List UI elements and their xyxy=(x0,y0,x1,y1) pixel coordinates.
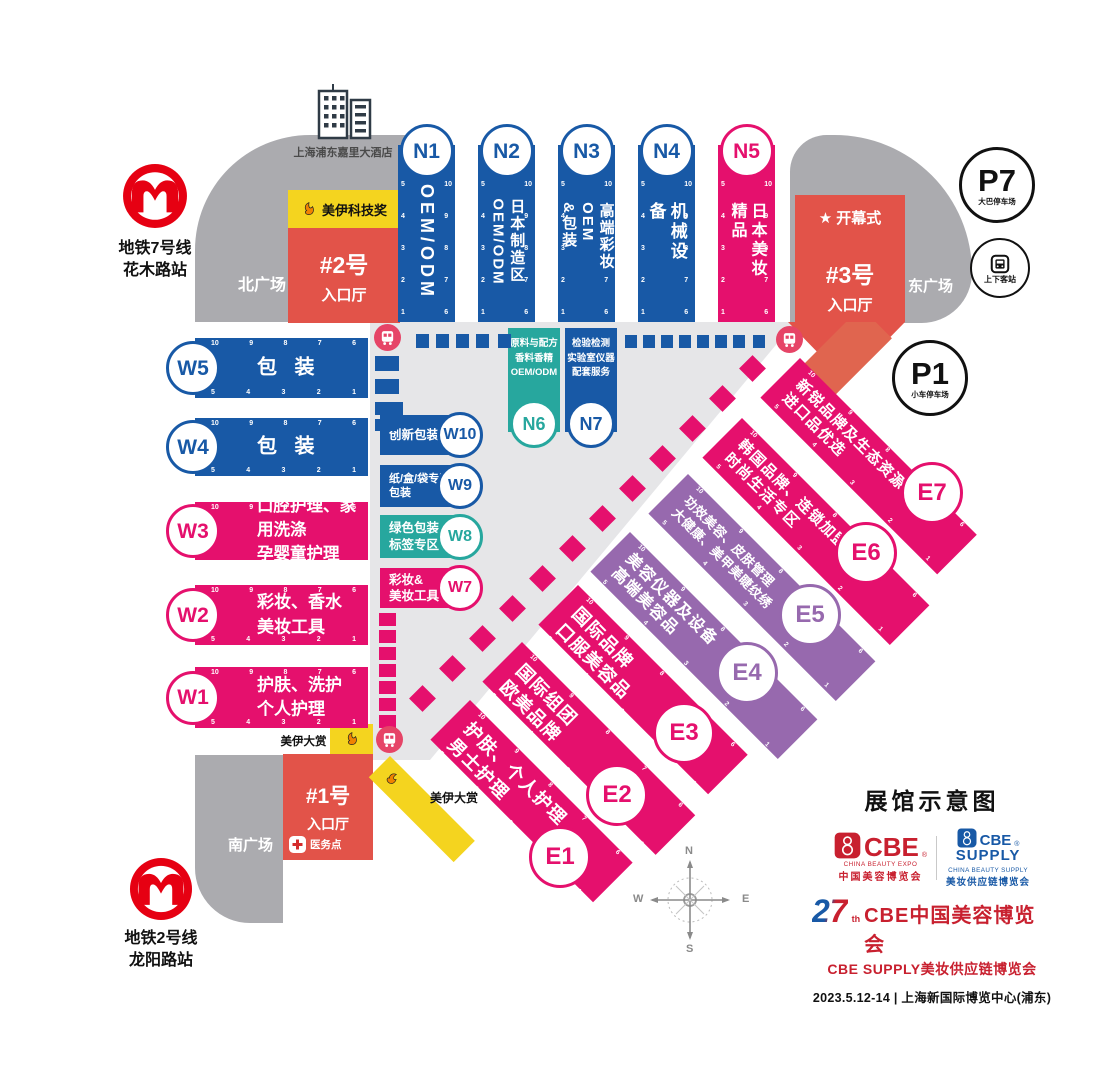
cbe-logo: CBE ® CHINA BEAUTY EXPO 中国美容博览会 xyxy=(834,832,927,883)
gate-tile xyxy=(375,356,399,371)
gate-tile xyxy=(753,335,765,348)
expo-date-venue: 2023.5.12-14 | 上海新国际博览中心(浦东) xyxy=(813,987,1051,1006)
zone-W7-label: 彩妆& 美妆工具 xyxy=(389,572,439,605)
hall-N5: 54321 109876 日本美妆精品 N5 xyxy=(718,145,775,322)
parking-p1-badge: P1 小车停车场 xyxy=(892,340,968,416)
venue-map: 上海浦东嘉里大酒店 地铁7号线 花木路站 地铁2号线 龙阳路站 北广场 东广场 … xyxy=(0,0,1093,1080)
meiyi-logo-icon xyxy=(344,731,360,747)
gate-tile xyxy=(379,681,396,694)
compass-w: W xyxy=(633,893,643,905)
zone-W10-badge: W10 xyxy=(437,412,483,458)
zone-W8-label: 绿色包装 标签专区 xyxy=(389,520,439,553)
hall-E4-badge: E4 xyxy=(716,642,778,704)
opening-ceremony-label: 开幕式 xyxy=(836,207,881,228)
parking-p7-label: 大巴停车场 xyxy=(978,198,1016,206)
expo-name-line2: CBE SUPPLY美妆供应链博览会 xyxy=(827,959,1036,979)
east-plaza-label: 东广场 xyxy=(908,275,953,296)
parking-p1-id: P1 xyxy=(911,358,949,389)
gate-tile xyxy=(375,419,397,431)
zone-W8-badge: W8 xyxy=(437,514,483,560)
cbe-supply-sub-cn: 美妆供应链博览会 xyxy=(946,874,1030,888)
star-icon: ★ xyxy=(819,209,832,227)
hall-N1: 54321 109876 OEM/ODM N1 xyxy=(398,145,455,322)
hall-N7-badge: N7 xyxy=(567,400,615,448)
hall-W1-badge: W1 xyxy=(166,671,220,725)
cbe-supply-logo-text1: CBE xyxy=(980,833,1012,848)
north-plaza-label: 北广场 xyxy=(238,271,286,295)
gate-tile xyxy=(625,335,637,348)
gate-tile xyxy=(379,647,396,660)
medical-cross-icon xyxy=(289,836,306,853)
gate-tile xyxy=(498,334,511,348)
compass-icon xyxy=(650,860,730,940)
cbe-logo-sub-cn: 中国美容博览会 xyxy=(838,868,922,883)
hall-E6-badge: E6 xyxy=(835,522,897,584)
gate-tile xyxy=(661,335,673,348)
cbe-supply-logo: CBE ® SUPPLY CHINA BEAUTY SUPPLY 美妆供应链博览… xyxy=(946,828,1030,888)
hall-N4-label: 机械设备 xyxy=(645,203,688,283)
gate-tile xyxy=(379,698,396,711)
hall-W4-badge: W4 xyxy=(166,420,220,474)
meiyi-award-logo-box xyxy=(330,724,373,754)
meiyi-logo-icon xyxy=(382,768,403,789)
meiyi-award-strip: 美伊大赏 xyxy=(277,727,330,754)
gate-numbers: 54321 xyxy=(401,181,405,316)
hall-N1-badge: N1 xyxy=(400,124,454,178)
cbe-supply-sub-en: CHINA BEAUTY SUPPLY xyxy=(948,867,1028,874)
hotel-icon xyxy=(306,82,378,144)
gate-tile xyxy=(416,334,429,348)
hall-W1-label: 护肤、洗护 个人护理 xyxy=(257,673,342,722)
registered-mark: ® xyxy=(922,852,927,859)
gate-numbers: 54321 xyxy=(481,181,485,316)
hall-N3-label: 高端彩妆OEM &包装 xyxy=(558,203,614,283)
hall-N2-badge: N2 xyxy=(480,124,534,178)
gate-numbers: 109876 xyxy=(211,420,356,427)
metro-line2-station: 龙阳路站 xyxy=(111,950,211,972)
meiyi-award-ramp-label: 美伊大赏 xyxy=(424,790,484,807)
meiyi-logo-icon xyxy=(301,201,317,217)
parking-p7-badge: P7 大巴停车场 xyxy=(959,147,1035,223)
hall-W2-badge: W2 xyxy=(166,588,220,642)
edition-number: 27 xyxy=(812,897,848,926)
passenger-station-badge: 上下客站 xyxy=(970,238,1030,298)
hall-N1-label: OEM/ODM xyxy=(415,184,438,300)
meiyi-tech-award-banner: 美伊科技奖 xyxy=(288,190,400,228)
gate-tile xyxy=(379,630,396,643)
gate-numbers: 109876 xyxy=(524,181,532,316)
entrance-1: #1号 入口厅 医务点 xyxy=(283,754,373,860)
hall-E1-badge: E1 xyxy=(529,826,591,888)
meiyi-tech-award-label: 美伊科技奖 xyxy=(322,200,387,219)
hall-N7-label: 检验检测 实验室仪器 配套服务 xyxy=(565,337,617,381)
bus-stop-icon xyxy=(376,726,403,753)
entrance-1-id: #1号 xyxy=(306,780,350,810)
hall-N4: 54321 109876 机械设备 N4 xyxy=(638,145,695,322)
hall-W2: 109876 54321 彩妆、香水 美妆工具 W2 xyxy=(195,585,368,645)
hall-W3-label: 口腔护理、家用洗涤 孕婴童护理 xyxy=(257,495,368,567)
hall-W5-label: 包 装 xyxy=(257,354,321,383)
gate-tile xyxy=(379,664,396,677)
medical-label: 医务点 xyxy=(310,837,342,852)
south-plaza-label: 南广场 xyxy=(228,834,273,855)
cbe-logo-sub-en: CHINA BEAUTY EXPO xyxy=(844,861,918,868)
metro-line2-icon xyxy=(128,856,194,922)
gate-tile xyxy=(476,334,489,348)
hall-W4: 109876 54321 包 装 W4 xyxy=(195,418,368,476)
hall-E5-badge: E5 xyxy=(779,584,841,646)
gate-tile xyxy=(436,334,449,348)
metro-line2-line: 地铁2号线 xyxy=(111,928,211,950)
passenger-station-label: 上下客站 xyxy=(984,276,1016,284)
metro-line7-icon xyxy=(121,162,189,230)
parking-p1-label: 小车停车场 xyxy=(911,391,949,399)
meiyi-award-label: 美伊大赏 xyxy=(281,733,327,749)
expo-name-line1: CBE中国美容博览会 xyxy=(864,899,1052,957)
hall-N3: 54321 109876 高端彩妆OEM &包装 N3 xyxy=(558,145,615,322)
bus-stop-icon xyxy=(776,326,803,353)
gate-tile xyxy=(697,335,709,348)
entrance-3-id: #3号 xyxy=(826,256,875,290)
entrance-2-hall: 入口厅 xyxy=(321,284,366,305)
parking-p7-id: P7 xyxy=(978,165,1016,196)
gate-tile xyxy=(379,613,396,626)
hall-N5-badge: N5 xyxy=(720,124,774,178)
zone-W9-badge: W9 xyxy=(437,463,483,509)
edition-suffix: th xyxy=(852,914,861,924)
hall-W4-label: 包 装 xyxy=(257,433,321,462)
hall-W5-badge: W5 xyxy=(166,341,220,395)
gate-numbers: 109876 xyxy=(211,340,356,347)
hall-E3-badge: E3 xyxy=(653,702,715,764)
hall-E2-badge: E2 xyxy=(586,764,648,826)
gate-tile xyxy=(375,379,399,394)
gate-tile xyxy=(643,335,655,348)
hall-N6-label: 原料与配方 香料香精 OEM/ODM xyxy=(508,337,560,381)
hall-N5-label: 日本美妆精品 xyxy=(727,203,767,283)
entrance-3: ★ 开幕式 #3号 入口厅 xyxy=(795,195,905,322)
hall-N6-badge: N6 xyxy=(510,400,558,448)
compass-n: N xyxy=(685,845,693,857)
hall-N3-badge: N3 xyxy=(560,124,614,178)
gate-tile xyxy=(375,402,403,415)
entrance-2-id: #2号 xyxy=(320,246,369,280)
cbe-logo-icon xyxy=(834,832,861,859)
metro-line7-line: 地铁7号线 xyxy=(105,238,205,260)
gate-numbers: 109876 xyxy=(444,181,452,316)
footer-branding: 展馆示意图 CBE ® CHINA BEAUTY EXPO 中国美容博览会 xyxy=(812,782,1052,1006)
cbe-supply-logo-icon xyxy=(957,828,977,848)
compass-e: E xyxy=(742,893,749,905)
hall-E7-badge: E7 xyxy=(901,462,963,524)
hall-W3-badge: W3 xyxy=(166,504,220,558)
gate-tile xyxy=(456,334,469,348)
map-title: 展馆示意图 xyxy=(865,782,1000,816)
gate-tile xyxy=(679,335,691,348)
cbe-supply-logo-text2: SUPPLY xyxy=(956,848,1021,865)
gate-tile xyxy=(733,335,745,348)
gate-numbers: 54321 xyxy=(721,181,725,316)
hall-N2: 54321 109876 日本制造区 OEM/ODM N2 xyxy=(478,145,535,322)
cbe-logo-text: CBE xyxy=(864,836,919,859)
compass-s: S xyxy=(686,943,693,955)
metro-line7-station: 花木路站 xyxy=(105,260,205,282)
logo-divider xyxy=(936,836,937,880)
hall-N2-label: 日本制造区 OEM/ODM xyxy=(488,199,526,286)
gate-numbers: 54321 xyxy=(211,389,356,396)
hotel-label: 上海浦东嘉里大酒店 xyxy=(283,146,403,161)
zone-W7-badge: W7 xyxy=(437,565,483,611)
hall-W1: 109876 54321 护肤、洗护 个人护理 W1 xyxy=(195,667,368,728)
passenger-bus-icon xyxy=(989,253,1011,275)
hall-W5: 109876 54321 包 装 W5 xyxy=(195,338,368,398)
hall-W3: 109876 口腔护理、家用洗涤 孕婴童护理 W3 xyxy=(195,502,368,560)
entrance-2: #2号 入口厅 xyxy=(288,228,400,323)
entrance-3-hall: 入口厅 xyxy=(827,294,872,315)
gate-numbers: 54321 xyxy=(211,467,356,474)
entrance-1-hall: 入口厅 xyxy=(307,814,349,834)
bus-stop-icon xyxy=(374,324,401,351)
hall-W2-label: 彩妆、香水 美妆工具 xyxy=(257,590,342,639)
hall-N4-badge: N4 xyxy=(640,124,694,178)
gate-tile xyxy=(715,335,727,348)
